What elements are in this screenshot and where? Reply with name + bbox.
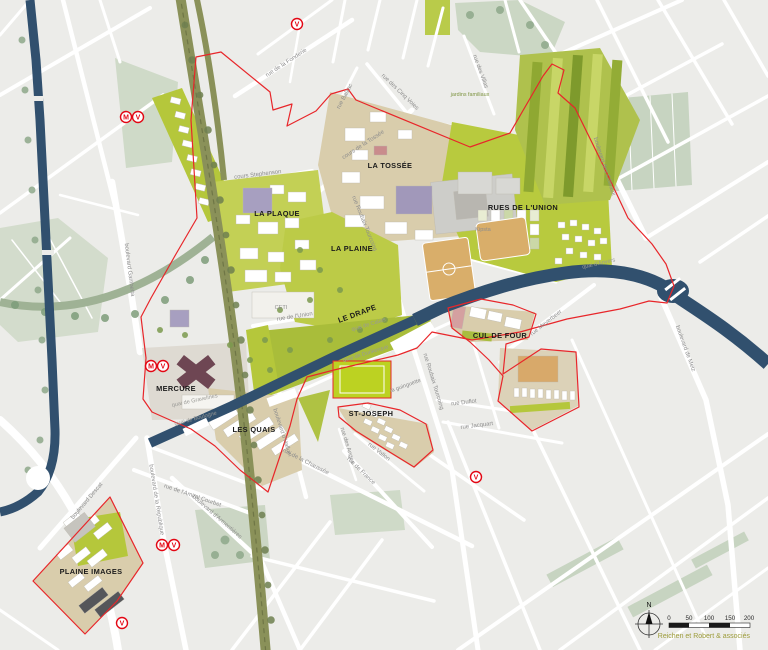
svg-text:M: M: [148, 364, 154, 371]
scale-tick: 200: [744, 615, 755, 622]
metro-station-icon: M: [157, 540, 168, 551]
district-label-mercure: MERCURE: [156, 384, 196, 393]
district-label-plaine-images: PLAINE IMAGES: [60, 567, 123, 576]
scale-tick: 50: [686, 615, 693, 622]
svg-text:M: M: [159, 543, 165, 550]
v-station-icon: V: [471, 472, 482, 483]
metro-station-icon: M: [146, 361, 157, 372]
place-label-ceti: CETI: [275, 305, 288, 311]
map-canvas: rue de la Fonderie rue des Villas rue Ba…: [0, 0, 768, 650]
svg-text:V: V: [136, 115, 141, 122]
district-label-st-joseph: ST-JOSEPH: [349, 409, 394, 418]
svg-text:M: M: [123, 115, 129, 122]
place-label-jardins-familiaux: jardins familiaux: [450, 92, 490, 98]
district-label-les-quais: LES QUAIS: [233, 425, 276, 434]
scale-tick: 150: [725, 615, 736, 622]
svg-text:V: V: [295, 22, 300, 29]
v-station-icon: V: [117, 618, 128, 629]
svg-text:V: V: [474, 475, 479, 482]
svg-text:V: V: [120, 621, 125, 628]
v-station-icon: V: [158, 361, 169, 372]
urban-plan-map: rue de la Fonderie rue des Villas rue Ba…: [0, 0, 768, 650]
v-station-icon: V: [133, 112, 144, 123]
attribution: Reichen et Robert & associés: [658, 633, 751, 640]
district-label-la-plaque: LA PLAQUE: [254, 209, 300, 218]
v-station-icon: V: [292, 19, 303, 30]
district-label-rues-de-l-union: RUES DE L'UNION: [488, 203, 558, 212]
scale-tick: 100: [704, 615, 715, 622]
place-label-kipsta: Kipsta: [475, 227, 491, 233]
district-label-cul-de-four: CUL DE FOUR: [473, 331, 528, 340]
svg-text:V: V: [172, 543, 177, 550]
svg-text:V: V: [161, 364, 166, 371]
guinguette-pitch: [333, 361, 391, 398]
district-label-la-tossee: LA TOSSÉE: [368, 161, 413, 170]
compass-north-label: N: [646, 602, 651, 609]
district-label-la-plaine: LA PLAINE: [331, 244, 373, 253]
metro-station-icon: M: [121, 112, 132, 123]
v-station-icon: V: [169, 540, 180, 551]
scale-tick: 0: [667, 615, 671, 622]
